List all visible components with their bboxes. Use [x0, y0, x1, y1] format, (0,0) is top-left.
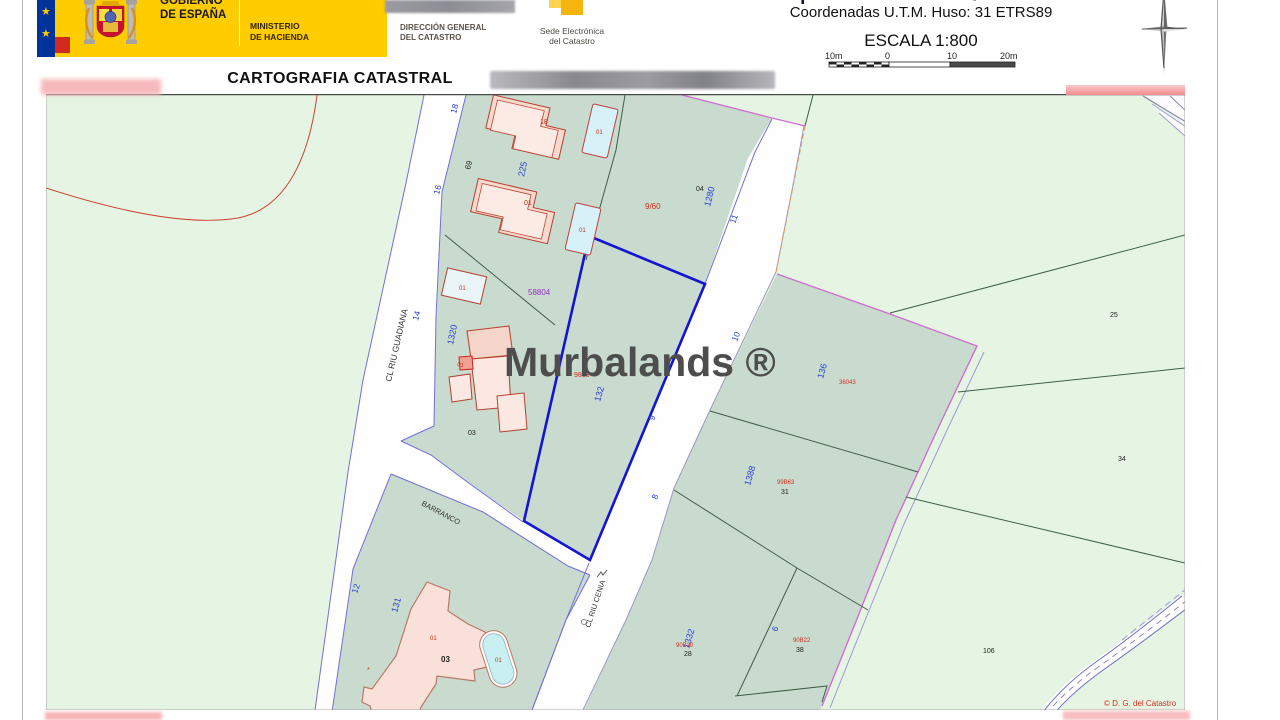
svg-text:99B63: 99B63: [777, 480, 795, 486]
svg-text:28: 28: [684, 651, 692, 658]
svg-text:31: 31: [781, 489, 789, 496]
svg-text:90B22: 90B22: [793, 638, 811, 644]
svg-text:01: 01: [495, 658, 502, 664]
svg-text:90B20: 90B20: [676, 643, 694, 649]
svg-text:36043: 36043: [839, 380, 856, 386]
svg-text:03: 03: [441, 655, 450, 664]
svg-text:01: 01: [579, 228, 586, 234]
svg-text:01: 01: [459, 286, 466, 292]
svg-text:*: *: [367, 667, 370, 674]
svg-text:58804: 58804: [528, 288, 551, 297]
svg-text:01: 01: [430, 636, 437, 642]
svg-text:9/60: 9/60: [645, 202, 661, 211]
svg-text:18: 18: [540, 119, 548, 126]
svg-text:04: 04: [696, 186, 704, 193]
svg-text:01: 01: [524, 200, 532, 207]
svg-text:38: 38: [796, 647, 804, 654]
svg-text:© D. G. del Catastro: © D. G. del Catastro: [1104, 699, 1177, 708]
svg-text:34: 34: [1118, 456, 1126, 463]
svg-text:01: 01: [596, 130, 603, 136]
svg-text:25: 25: [1110, 312, 1118, 319]
svg-text:106: 106: [983, 648, 995, 655]
svg-text:03: 03: [468, 430, 476, 437]
